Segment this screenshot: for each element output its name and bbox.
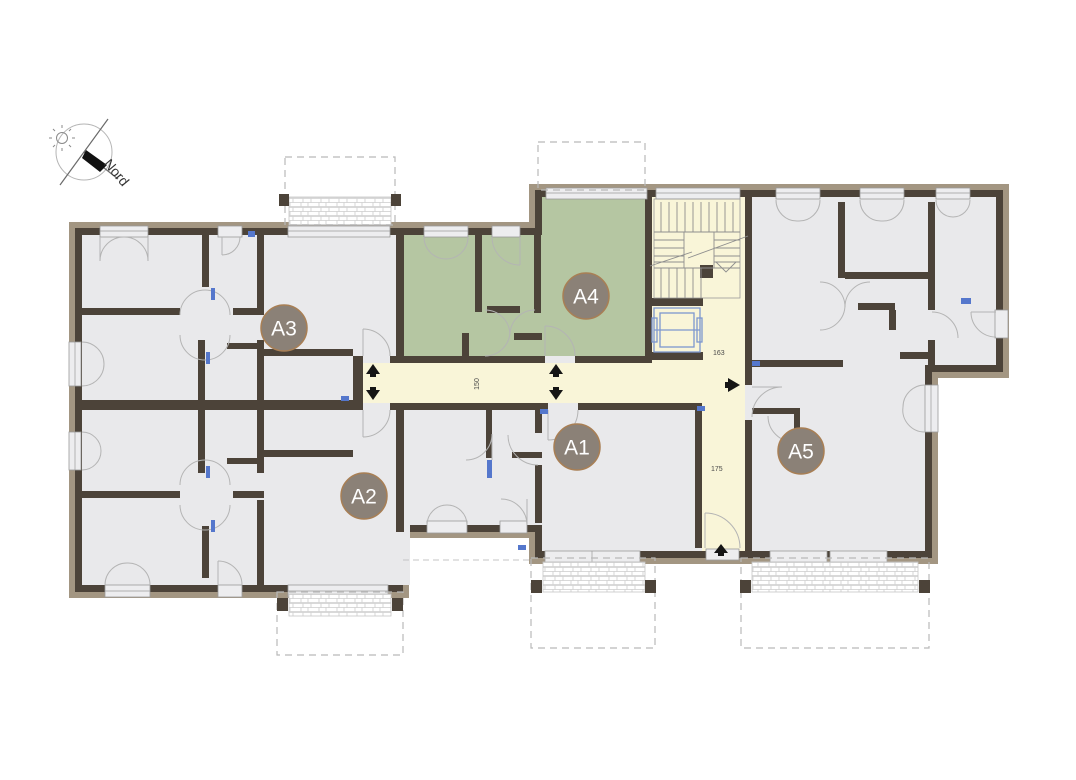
unit-a4-area[interactable]: [404, 197, 645, 356]
floorplan-page: 150 163 175 A3 A2 A4 A1 A5: [0, 0, 1076, 780]
unit-badge-a5[interactable]: A5: [778, 428, 824, 474]
unit-badge-a4[interactable]: A4: [563, 273, 609, 319]
unit-badge-a1[interactable]: A1: [554, 424, 600, 470]
unit-label-a4: A4: [573, 286, 599, 309]
dimension-corridor: 150: [474, 378, 481, 390]
unit-label-a5: A5: [788, 441, 814, 464]
unit-badge-a3[interactable]: A3: [261, 305, 307, 351]
north-label: Nord: [101, 156, 133, 190]
dimension-entrance-hall: 175: [711, 466, 723, 473]
sun-icon: [49, 125, 75, 151]
unit-label-a3: A3: [271, 318, 297, 341]
unit-label-a2: A2: [351, 486, 377, 509]
dimension-stair-hall: 163: [713, 350, 725, 357]
unit-label-a1: A1: [564, 437, 590, 460]
compass: Nord: [49, 119, 133, 189]
floorplan-svg: 150 163 175 A3 A2 A4 A1 A5: [0, 0, 1076, 780]
unit-badge-a2[interactable]: A2: [341, 473, 387, 519]
